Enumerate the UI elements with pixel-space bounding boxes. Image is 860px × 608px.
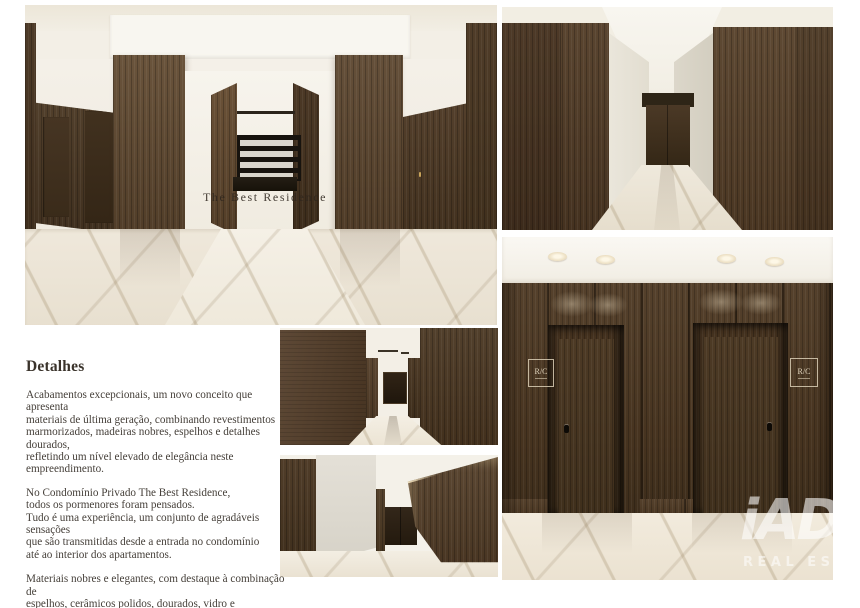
elevator-door-left: [548, 325, 624, 513]
sign-subline: [535, 378, 547, 379]
sign-label: R/C: [535, 367, 548, 376]
details-paragraph-3: Materiais nobres e elegantes, com destaq…: [26, 573, 294, 608]
ceiling-light: [765, 257, 784, 266]
details-paragraph-2: No Condomínio Privado The Best Residence…: [26, 487, 294, 561]
corridor-side-panel: [376, 489, 385, 553]
recess-ceiling-light-bar: [237, 111, 295, 114]
lobby-wall-text: The Best Residence: [175, 190, 355, 205]
corridor-side-panel: [408, 358, 420, 418]
corridor-side-panel: [366, 358, 378, 418]
lobby-right-wall: [403, 100, 469, 242]
lobby-ceiling-recess: [110, 15, 410, 59]
photo-lobby: The Best Residence: [25, 5, 497, 325]
wall-corner-line: [560, 23, 561, 230]
photo-elevator-hall: R/C R/C iAD REAL ESTATE: [502, 237, 833, 580]
wall-light-bloom: [740, 291, 782, 315]
lobby-floor: [25, 229, 497, 325]
door-panel: [43, 117, 69, 217]
corridor-end-door: [385, 507, 417, 545]
details-section: Detalhes Acabamentos excepcionais, um no…: [26, 358, 294, 608]
sign-label: R/C: [798, 367, 811, 376]
corridor-end-door: [383, 372, 407, 404]
floor-walkway: [165, 229, 365, 325]
wall-light-bloom: [588, 293, 628, 317]
corridor-end-door: [646, 105, 690, 169]
details-paragraph-1: Acabamentos excepcionais, um novo concei…: [26, 389, 294, 476]
ceiling-light-bar: [401, 352, 409, 354]
recess-left-panel: [211, 83, 237, 235]
ceiling-light-bar: [378, 350, 398, 352]
wall-sign-rc-left: R/C: [528, 359, 554, 387]
door-seam: [667, 105, 668, 169]
floor-reflection: [384, 416, 402, 445]
brand-watermark: iAD: [740, 495, 833, 547]
photo-corridor-upper: [502, 7, 833, 230]
wall-light-bloom: [698, 289, 744, 315]
ceiling-light: [717, 254, 736, 263]
right-wood-block: [420, 328, 498, 445]
details-heading: Detalhes: [26, 358, 294, 376]
floor-reflection: [340, 229, 400, 287]
floor-reflection: [542, 513, 632, 553]
ceiling-light: [596, 255, 615, 264]
door-handle: [564, 425, 569, 433]
wall-shade: [795, 27, 833, 230]
door-handle: [419, 172, 421, 177]
ceiling-light: [548, 252, 567, 261]
wall-sign-rc-right: R/C: [790, 358, 818, 387]
lobby-reception-desk: [233, 177, 297, 191]
elevator-door-right: [693, 323, 788, 513]
corridor-right-wood-wall: [713, 27, 833, 230]
sign-subline: [798, 378, 810, 379]
door-handle: [767, 423, 772, 431]
lobby-shelving-unit: [237, 135, 301, 181]
brochure-page: The Best Residence: [0, 0, 860, 608]
cove-light-edge: [406, 470, 440, 483]
floor-reflection: [654, 165, 680, 230]
corridor-left-wood-wall: [502, 23, 609, 230]
photo-corridor-small-2: [280, 455, 498, 577]
brand-watermark-tagline: REAL ESTATE: [743, 555, 833, 570]
floor-reflection: [120, 229, 180, 287]
door-seam: [400, 507, 401, 545]
photo-corridor-small-1: [280, 328, 498, 445]
wall-shade: [502, 23, 560, 230]
side-wall-shade-left: [502, 283, 520, 529]
